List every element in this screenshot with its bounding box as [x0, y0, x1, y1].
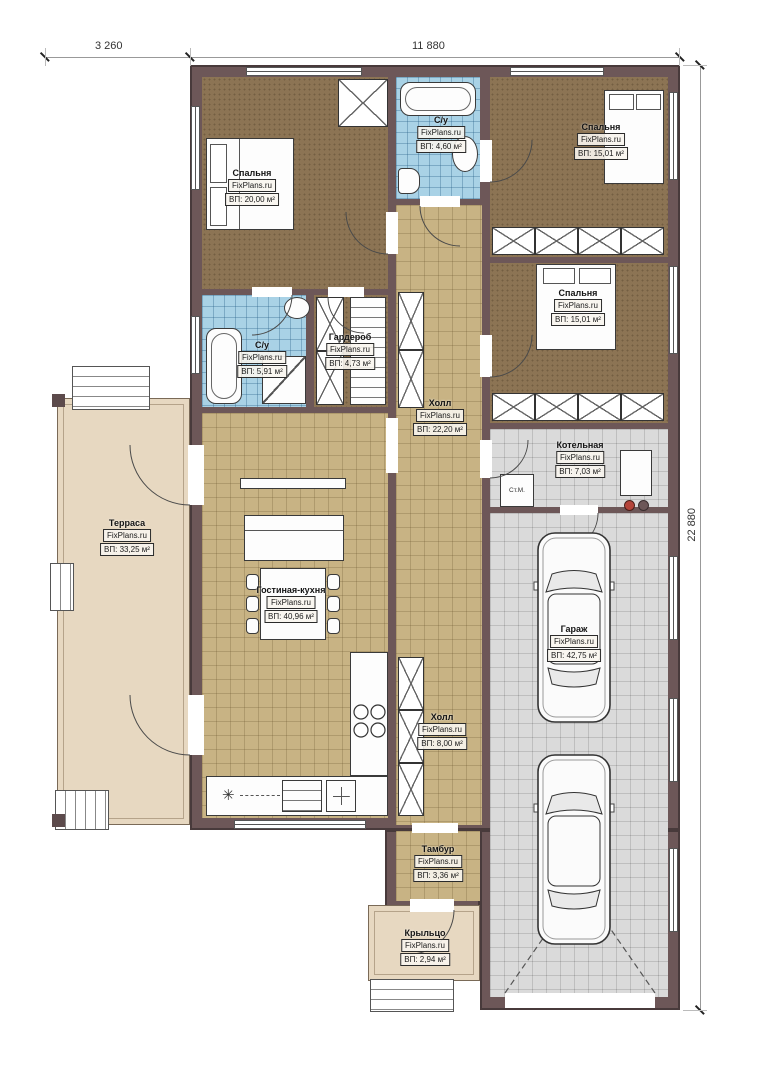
room-name: Холл	[417, 712, 467, 722]
cooktop-symbol: ✳	[222, 786, 235, 804]
closet-bedroom-3	[492, 393, 535, 421]
room-label-bedroom-3: Спальня FixPlans.ru ВП: 15,01 м²	[551, 288, 605, 327]
kitchen-counter-side	[350, 652, 388, 776]
dimension-extension	[683, 65, 707, 66]
room-area: ВП: 15,01 м²	[574, 147, 628, 160]
room-name: С/у	[416, 115, 466, 125]
closet-bedroom-3	[535, 393, 578, 421]
room-area: ВП: 20,00 м²	[225, 193, 279, 206]
room-label-garage: Гараж FixPlans.ru ВП: 42,75 м²	[547, 624, 601, 663]
room-area: ВП: 2,94 м²	[400, 953, 450, 966]
room-area: ВП: 5,91 м²	[237, 365, 287, 378]
room-area: ВП: 42,75 м²	[547, 649, 601, 662]
room-name: Гостиная-кухня	[257, 585, 326, 595]
room-name: С/у	[237, 340, 287, 350]
boiler-unit	[620, 450, 652, 496]
dimension-extension	[683, 1010, 707, 1011]
sofa	[244, 515, 344, 561]
room-area: ВП: 4,73 м²	[325, 357, 375, 370]
window	[669, 92, 678, 180]
boiler-valve	[638, 500, 649, 511]
closet-bedroom-2	[578, 227, 621, 255]
terrace-steps-top	[72, 366, 150, 410]
room-watermark: FixPlans.ru	[556, 451, 604, 464]
chair	[327, 574, 340, 590]
window	[246, 67, 362, 76]
room-label-bath-1: С/у FixPlans.ru ВП: 4,60 м²	[416, 115, 466, 154]
room-name: Холл	[413, 398, 467, 408]
room-area: ВП: 15,01 м²	[551, 313, 605, 326]
washing-machine-label: Ст.М.	[509, 487, 525, 494]
bathtub-bath-1	[400, 82, 476, 116]
room-watermark: FixPlans.ru	[414, 855, 462, 868]
room-name: Спальня	[574, 122, 628, 132]
kitchen-dashline	[240, 795, 280, 796]
closet-bedroom-3	[578, 393, 621, 421]
room-watermark: FixPlans.ru	[238, 351, 286, 364]
room-label-bath-2: С/у FixPlans.ru ВП: 5,91 м²	[237, 340, 287, 379]
room-watermark: FixPlans.ru	[550, 635, 598, 648]
window	[669, 556, 678, 640]
room-name: Тамбур	[413, 844, 463, 854]
closet-bedroom-2	[535, 227, 578, 255]
hall-closet	[398, 763, 424, 816]
room-label-hall-2: Холл FixPlans.ru ВП: 8,00 м²	[417, 712, 467, 751]
dimension-value-top-left: 3 260	[95, 40, 123, 52]
room-watermark: FixPlans.ru	[554, 299, 602, 312]
window	[191, 316, 200, 374]
room-label-living-kitchen: Гостиная-кухня FixPlans.ru ВП: 40,96 м²	[257, 585, 326, 624]
room-watermark: FixPlans.ru	[326, 343, 374, 356]
room-area: ВП: 8,00 м²	[417, 737, 467, 750]
room-label-wardrobe: Гардероб FixPlans.ru ВП: 4,73 м²	[325, 332, 375, 371]
room-watermark: FixPlans.ru	[416, 409, 464, 422]
hall-closet	[398, 292, 424, 350]
floor-terrace	[57, 398, 190, 825]
window	[669, 848, 678, 932]
porch-steps	[370, 979, 454, 1012]
terrace-post	[52, 814, 65, 827]
closet-bedroom-2	[621, 227, 664, 255]
room-watermark: FixPlans.ru	[228, 179, 276, 192]
boiler-valve	[624, 500, 635, 511]
room-label-bedroom-1: Спальня FixPlans.ru ВП: 20,00 м²	[225, 168, 279, 207]
closet-bedroom-3	[621, 393, 664, 421]
dimension-extension	[679, 48, 680, 66]
hall-closet	[398, 657, 424, 710]
tv-cabinet	[240, 478, 346, 489]
dimension-line-right	[700, 65, 701, 1010]
room-area: ВП: 3,36 м²	[413, 869, 463, 882]
dimension-extension	[45, 48, 46, 66]
room-name: Терраса	[100, 518, 154, 528]
kitchen-sink	[326, 780, 356, 812]
room-name: Спальня	[225, 168, 279, 178]
room-area: ВП: 40,96 м²	[264, 610, 318, 623]
room-label-vestibule: Тамбур FixPlans.ru ВП: 3,36 м²	[413, 844, 463, 883]
room-watermark: FixPlans.ru	[417, 126, 465, 139]
window	[510, 67, 604, 76]
room-area: ВП: 33,25 м²	[100, 543, 154, 556]
terrace-post	[52, 394, 65, 407]
room-watermark: FixPlans.ru	[401, 939, 449, 952]
terrace-steps-side	[50, 563, 74, 611]
sink-bath-2	[284, 297, 310, 319]
dimension-value-right: 22 880	[686, 508, 698, 542]
room-label-terrace: Терраса FixPlans.ru ВП: 33,25 м²	[100, 518, 154, 557]
room-watermark: FixPlans.ru	[577, 133, 625, 146]
room-area: ВП: 7,03 м²	[555, 465, 605, 478]
window	[669, 266, 678, 354]
room-watermark: FixPlans.ru	[103, 529, 151, 542]
room-label-boiler-room: Котельная FixPlans.ru ВП: 7,03 м²	[555, 440, 605, 479]
room-name: Крыльцо	[400, 928, 450, 938]
room-watermark: FixPlans.ru	[418, 723, 466, 736]
room-name: Спальня	[551, 288, 605, 298]
dimension-value-top-main: 11 880	[412, 40, 445, 52]
floor-garage	[490, 513, 668, 997]
chair	[327, 596, 340, 612]
window	[191, 106, 200, 190]
toilet-bath-1	[398, 168, 420, 194]
closet-bedroom-2	[492, 227, 535, 255]
room-name: Котельная	[555, 440, 605, 450]
window	[234, 820, 366, 829]
dimension-line-top	[45, 57, 680, 58]
closet-bedroom-1	[338, 79, 388, 127]
dimension-extension	[190, 48, 191, 66]
room-area: ВП: 22,20 м²	[413, 423, 467, 436]
room-name: Гараж	[547, 624, 601, 634]
room-label-hall-1: Холл FixPlans.ru ВП: 22,20 м²	[413, 398, 467, 437]
room-label-porch: Крыльцо FixPlans.ru ВП: 2,94 м²	[400, 928, 450, 967]
room-name: Гардероб	[325, 332, 375, 342]
room-label-bedroom-2: Спальня FixPlans.ru ВП: 15,01 м²	[574, 122, 628, 161]
chair	[327, 618, 340, 634]
room-area: ВП: 4,60 м²	[416, 140, 466, 153]
room-watermark: FixPlans.ru	[267, 596, 315, 609]
floor-plan-canvas: ✳ Ст.М.	[0, 0, 763, 1080]
oven	[282, 780, 322, 812]
window	[669, 698, 678, 782]
